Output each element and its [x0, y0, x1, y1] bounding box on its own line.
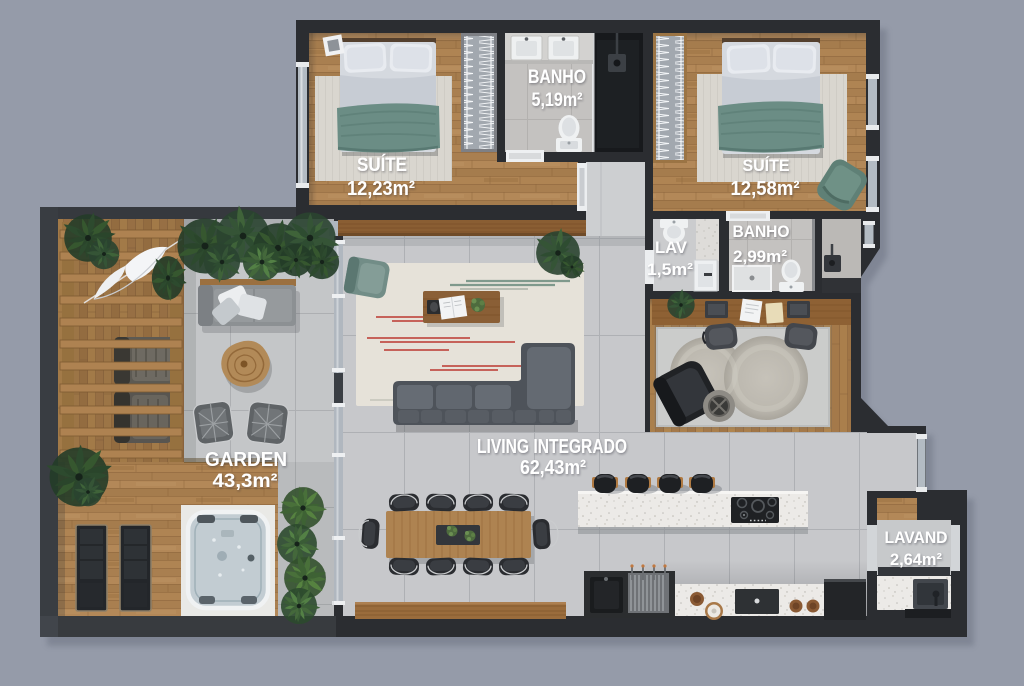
svg-text:LAV: LAV — [655, 238, 688, 257]
svg-text:62,43m²: 62,43m² — [520, 457, 586, 479]
svg-text:2,99m²: 2,99m² — [733, 247, 787, 266]
svg-text:SUÍTE: SUÍTE — [743, 156, 790, 175]
svg-text:BANHO: BANHO — [528, 67, 586, 88]
svg-text:2,64m²: 2,64m² — [890, 550, 942, 569]
svg-text:12,23m²: 12,23m² — [347, 178, 415, 200]
svg-text:5,19m²: 5,19m² — [532, 90, 583, 111]
svg-text:12,58m²: 12,58m² — [731, 178, 800, 200]
svg-text:GARDEN: GARDEN — [205, 449, 287, 471]
svg-text:43,3m²: 43,3m² — [213, 471, 278, 492]
svg-text:LAVAND: LAVAND — [885, 528, 948, 547]
svg-text:SUÍTE: SUÍTE — [357, 154, 407, 176]
svg-text:1,5m²: 1,5m² — [647, 260, 693, 279]
svg-text:LIVING INTEGRADO: LIVING INTEGRADO — [477, 436, 627, 458]
svg-text:BANHO: BANHO — [733, 223, 790, 241]
